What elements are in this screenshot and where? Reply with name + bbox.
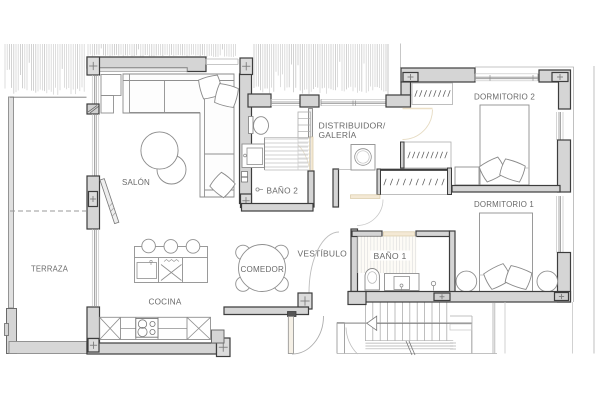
svg-text:BAÑO 1: BAÑO 1	[374, 251, 407, 261]
svg-text:DORMITORIO 1: DORMITORIO 1	[474, 199, 534, 209]
svg-text:BAÑO 2: BAÑO 2	[267, 186, 299, 196]
svg-text:TERRAZA: TERRAZA	[31, 264, 68, 274]
svg-text:COCINA: COCINA	[149, 297, 182, 307]
svg-text:DORMITORIO 2: DORMITORIO 2	[474, 92, 535, 102]
svg-text:GALERÍA: GALERÍA	[319, 130, 357, 140]
svg-text:VESTÍBULO: VESTÍBULO	[298, 249, 348, 259]
svg-text:COMEDOR: COMEDOR	[241, 264, 285, 274]
svg-text:SALÓN: SALÓN	[122, 177, 150, 187]
